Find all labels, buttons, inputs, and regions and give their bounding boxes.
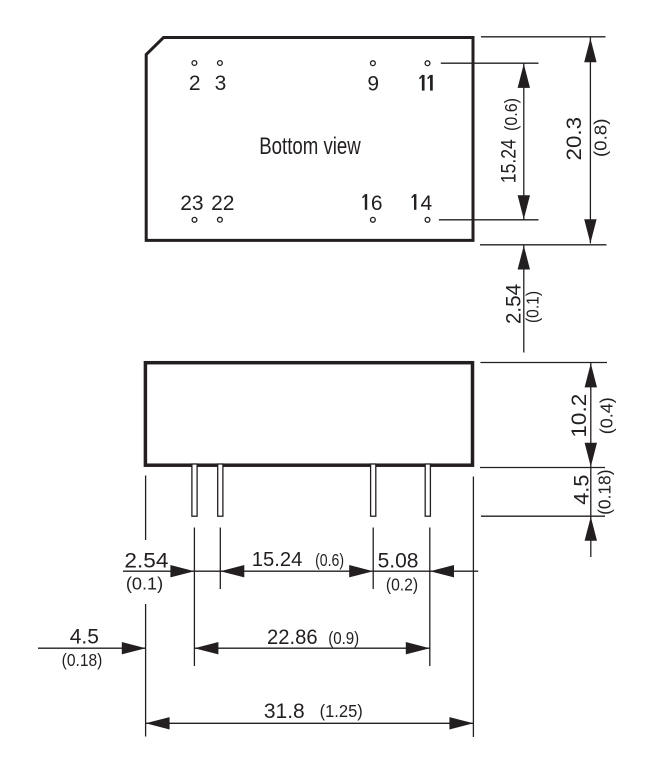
svg-text:(0.4): (0.4) — [597, 397, 617, 434]
svg-text:4.5: 4.5 — [570, 475, 593, 505]
svg-text:(0.2): (0.2) — [386, 575, 418, 595]
svg-text:15.24: 15.24 — [252, 548, 303, 571]
svg-text:(0.6): (0.6) — [315, 550, 344, 570]
svg-text:20.3: 20.3 — [563, 117, 586, 161]
svg-text:(0.1): (0.1) — [523, 291, 543, 323]
svg-text:4: 4 — [420, 192, 432, 215]
svg-text:Bottom view: Bottom view — [259, 133, 361, 160]
svg-text:(0.8): (0.8) — [591, 119, 611, 158]
svg-text:(0.6): (0.6) — [501, 98, 521, 131]
svg-text:3: 3 — [215, 72, 227, 95]
svg-text:4.5: 4.5 — [70, 625, 99, 648]
svg-text:23: 23 — [180, 192, 203, 215]
svg-text:31.8: 31.8 — [264, 700, 305, 723]
svg-text:(0.9): (0.9) — [328, 628, 359, 648]
svg-text:22: 22 — [211, 192, 234, 215]
svg-text:10.2: 10.2 — [568, 394, 591, 438]
svg-text:(0.18): (0.18) — [595, 470, 615, 515]
svg-text:22.86: 22.86 — [267, 626, 318, 649]
svg-text:9: 9 — [367, 73, 379, 96]
svg-text:(0.18): (0.18) — [62, 650, 103, 670]
svg-text:2.54: 2.54 — [124, 550, 168, 573]
svg-text:(1.25): (1.25) — [320, 701, 363, 721]
svg-text:15.24: 15.24 — [498, 139, 521, 183]
svg-text:6: 6 — [371, 192, 383, 215]
svg-text:(0.1): (0.1) — [126, 574, 163, 594]
svg-text:5.08: 5.08 — [378, 550, 419, 573]
svg-text:2: 2 — [189, 72, 201, 95]
